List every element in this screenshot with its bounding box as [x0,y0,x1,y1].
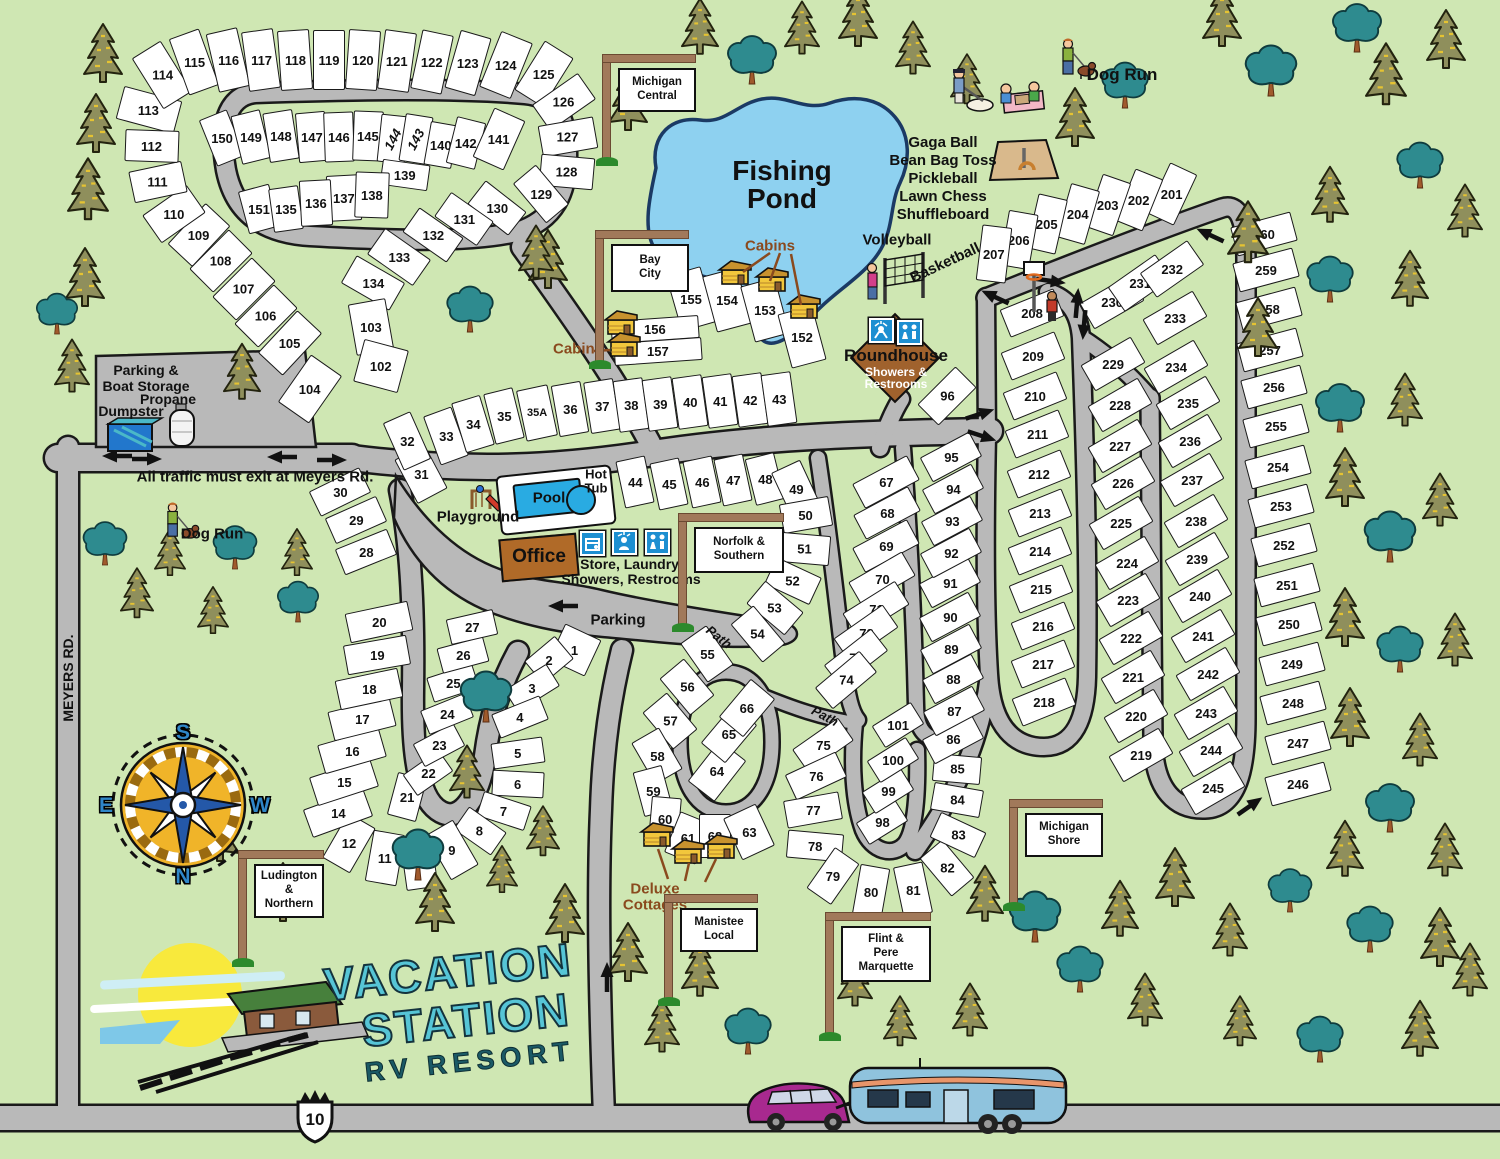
site-96: 96 [917,366,976,425]
site-258: 258 [1235,286,1303,331]
site-84: 84 [930,782,984,818]
site-5: 5 [490,737,545,770]
site-4: 4 [491,695,549,739]
site-18: 18 [335,668,404,711]
site-208: 208 [999,288,1064,338]
site-249: 249 [1258,641,1326,686]
site-138: 138 [354,171,390,218]
site-251: 251 [1253,562,1321,607]
site-256: 256 [1240,364,1308,409]
site-246: 246 [1264,761,1332,806]
site-250: 250 [1255,601,1323,646]
site-146: 146 [323,111,355,162]
site-117: 117 [241,28,281,92]
site-255: 255 [1242,403,1310,448]
sites-layer: 1131141151161171181191201211221231241251… [0,0,1500,1159]
site-11: 11 [365,830,406,887]
site-27: 27 [446,609,499,645]
site-253: 253 [1247,483,1315,528]
site-141: 141 [472,107,525,170]
site-6: 6 [491,770,544,799]
site-77: 77 [783,791,843,828]
site-120: 120 [345,29,381,91]
site-102: 102 [353,339,409,393]
site-119: 119 [313,30,345,90]
site-80: 80 [852,864,891,920]
campground-map: 1131141151161171181191201211221231241251… [0,0,1500,1159]
site-118: 118 [277,29,313,91]
site-152: 152 [777,305,826,368]
site-136: 136 [299,179,333,227]
site-207: 207 [976,224,1013,283]
site-252: 252 [1250,522,1318,567]
site-112: 112 [124,129,179,163]
site-43: 43 [761,371,798,427]
site-248: 248 [1259,680,1327,725]
site-233: 233 [1142,291,1207,346]
site-254: 254 [1244,444,1312,489]
site-148: 148 [262,109,299,163]
site-247: 247 [1264,720,1332,765]
site-81: 81 [893,861,933,918]
